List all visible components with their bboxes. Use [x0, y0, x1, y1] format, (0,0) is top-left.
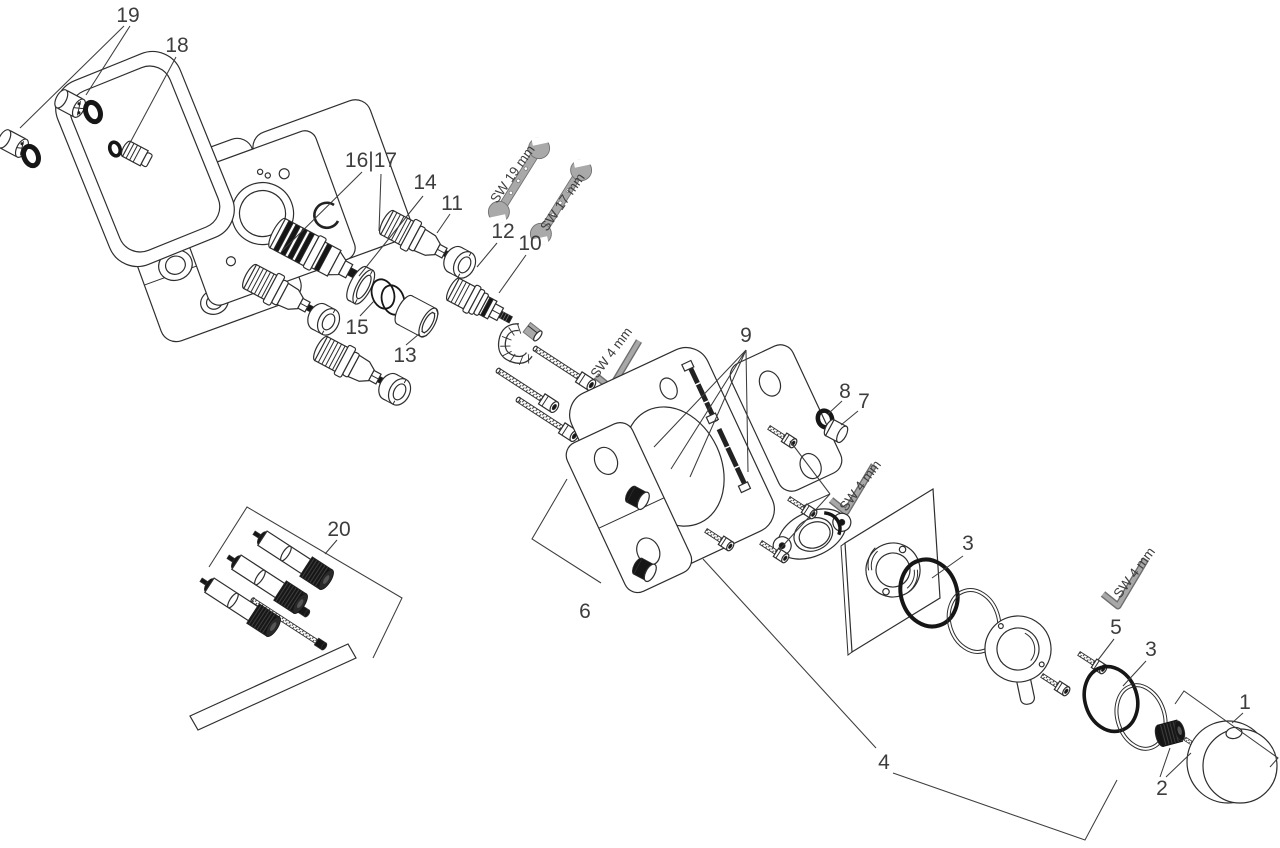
callout-20: 20 [327, 518, 350, 541]
callout-1: 1 [1239, 691, 1251, 714]
callout-4: 4 [878, 751, 890, 774]
drilling-template [190, 644, 356, 730]
callout-18: 18 [165, 34, 188, 57]
callout-6: 6 [579, 600, 591, 623]
callout-12: 12 [491, 220, 514, 243]
part-2-adapter [1153, 719, 1187, 748]
part-19-oring-1 [21, 144, 41, 168]
callout-10: 10 [518, 232, 541, 255]
part-1-knob [1187, 721, 1277, 803]
callout-14: 14 [413, 171, 437, 194]
wrench-17-label: SW 17 mm [537, 170, 588, 233]
sleeve-flange-lever [979, 610, 1062, 711]
part-5-screw-2 [1039, 671, 1071, 697]
callout-15: 15 [345, 316, 368, 339]
callout-9: 9 [740, 324, 752, 347]
exploded-parts-figure: 19 18 16|17 14 11 12 10 15 13 9 8 7 6 20… [0, 0, 1280, 848]
hex-key-label-3: SW 4 mm [1110, 544, 1158, 600]
callout-3a: 3 [962, 532, 974, 555]
escutcheon-plate [841, 489, 940, 655]
part-10-spring-clip [498, 318, 545, 368]
callout-19: 19 [116, 4, 139, 27]
callout-2: 2 [1156, 777, 1168, 800]
callout-16-17: 16|17 [345, 149, 397, 172]
callout-8: 8 [839, 380, 851, 403]
part-19-plug-1 [0, 128, 31, 160]
callout-7: 7 [858, 390, 870, 413]
callout-3b: 3 [1145, 638, 1157, 661]
exploded-diagram: 19 18 16|17 14 11 12 10 15 13 9 8 7 6 20… [0, 0, 1280, 848]
hex-key-label-2: SW 4 mm [836, 457, 884, 513]
callout-13: 13 [393, 344, 416, 367]
callout-5: 5 [1110, 616, 1122, 639]
fixing-screw-long-1 [531, 343, 598, 392]
part-13-sleeve [391, 293, 441, 340]
callout-11: 11 [441, 192, 463, 215]
part-3-oring-2 [1076, 660, 1146, 739]
